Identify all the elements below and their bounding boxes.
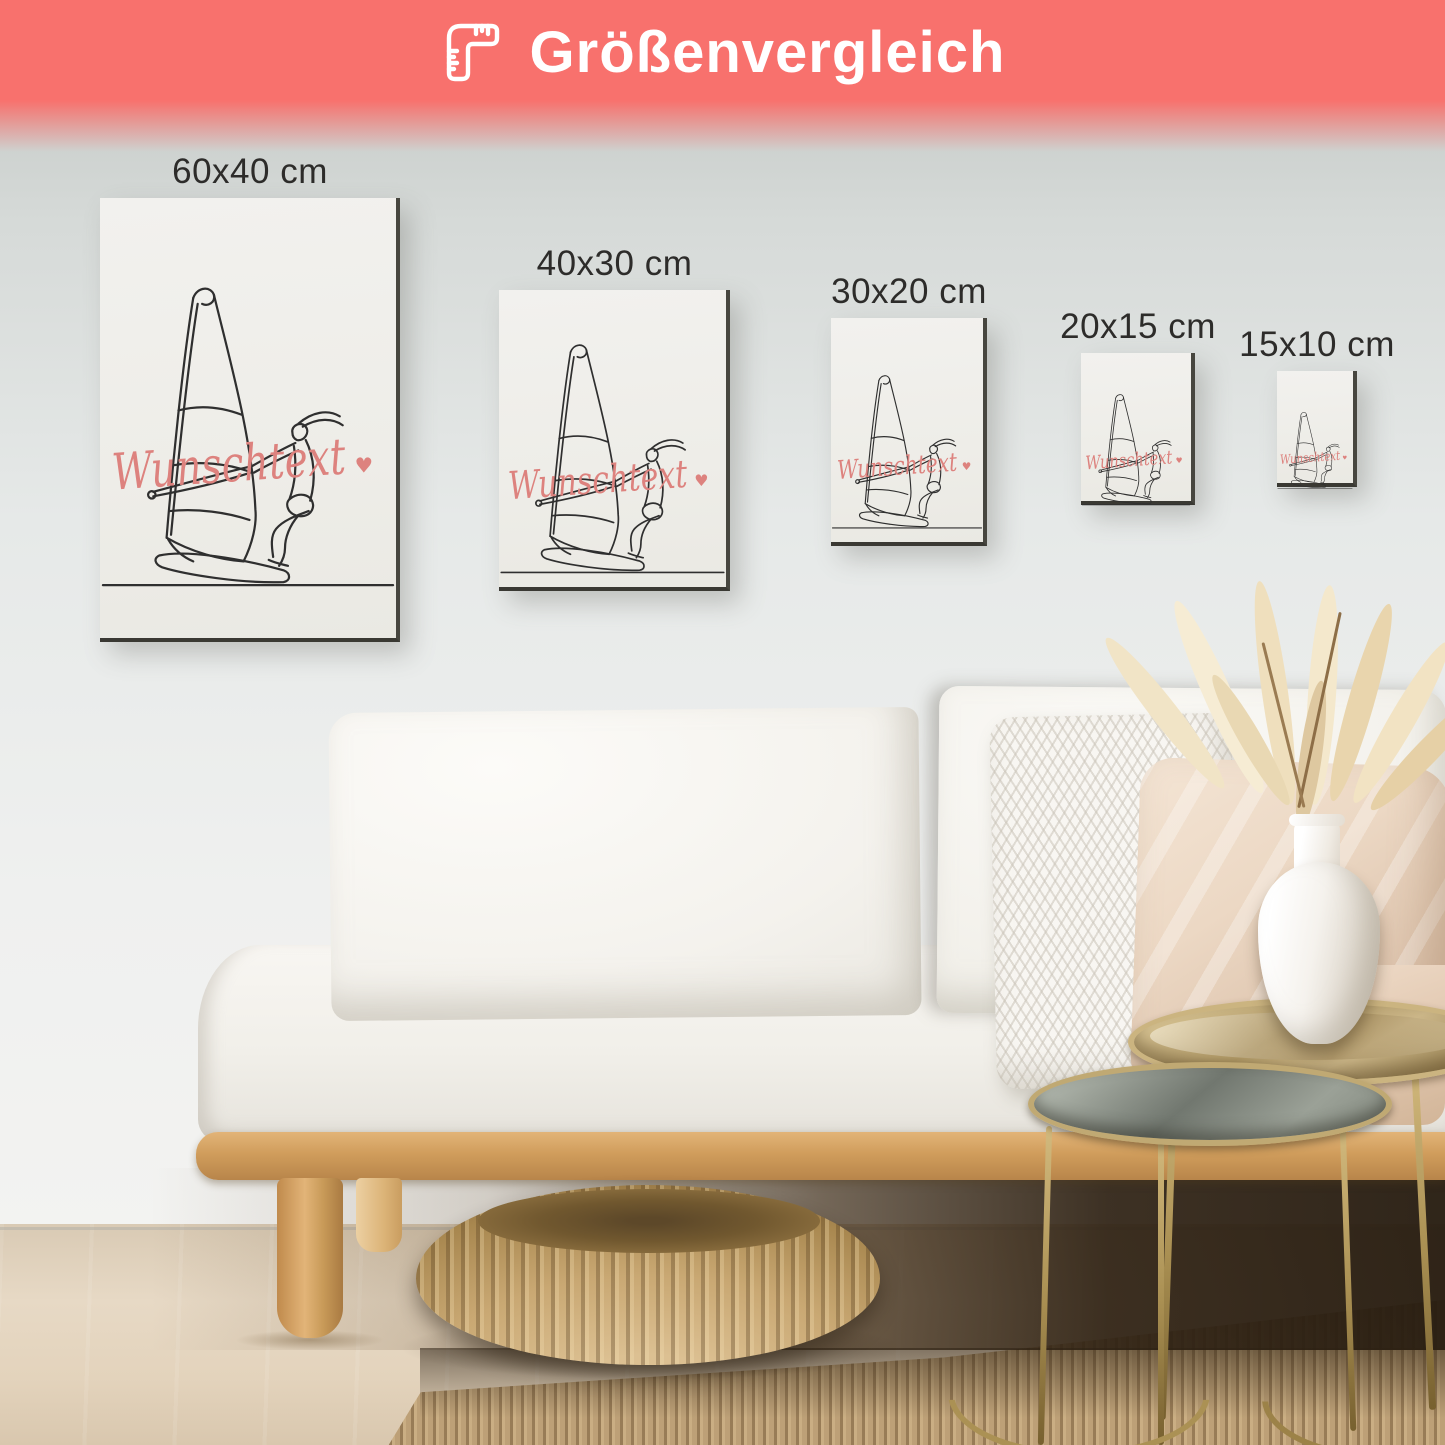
canvas-print-15x10 [1277, 371, 1357, 487]
size-label: 40x30 cm [537, 244, 693, 284]
size-option-30x20: 30x20 cm [833, 272, 985, 546]
canvas-print-40x30 [499, 290, 730, 591]
size-label: 60x40 cm [172, 152, 328, 192]
size-label: 30x20 cm [831, 272, 987, 312]
vase-lip [1289, 814, 1345, 826]
size-comparison-banner: Größenvergleich [0, 0, 1445, 152]
size-option-40x30: 40x30 cm [501, 244, 728, 591]
sofa-leg-front [277, 1178, 343, 1338]
sofa-leg-back [356, 1178, 402, 1252]
table-leg [1158, 1130, 1164, 1445]
size-label: 15x10 cm [1239, 325, 1395, 365]
gold-table-small-top [1028, 1062, 1392, 1146]
canvas-print-30x20 [831, 318, 987, 546]
canvas-print-60x40 [100, 198, 400, 642]
size-option-60x40: 60x40 cm [102, 152, 398, 642]
size-comparison-product-image: Wunschtext ♥ [0, 0, 1445, 1445]
banner-title: Größenvergleich [530, 19, 1006, 86]
canvas-print-20x15 [1081, 353, 1195, 505]
corner-ruler-icon [440, 17, 504, 87]
rattan-pouf-top [478, 1189, 820, 1253]
white-pillow-left [328, 707, 921, 1021]
size-option-20x15: 20x15 cm [1083, 307, 1193, 505]
size-option-15x10: 15x10 cm [1279, 325, 1355, 487]
size-label: 20x15 cm [1060, 307, 1216, 347]
